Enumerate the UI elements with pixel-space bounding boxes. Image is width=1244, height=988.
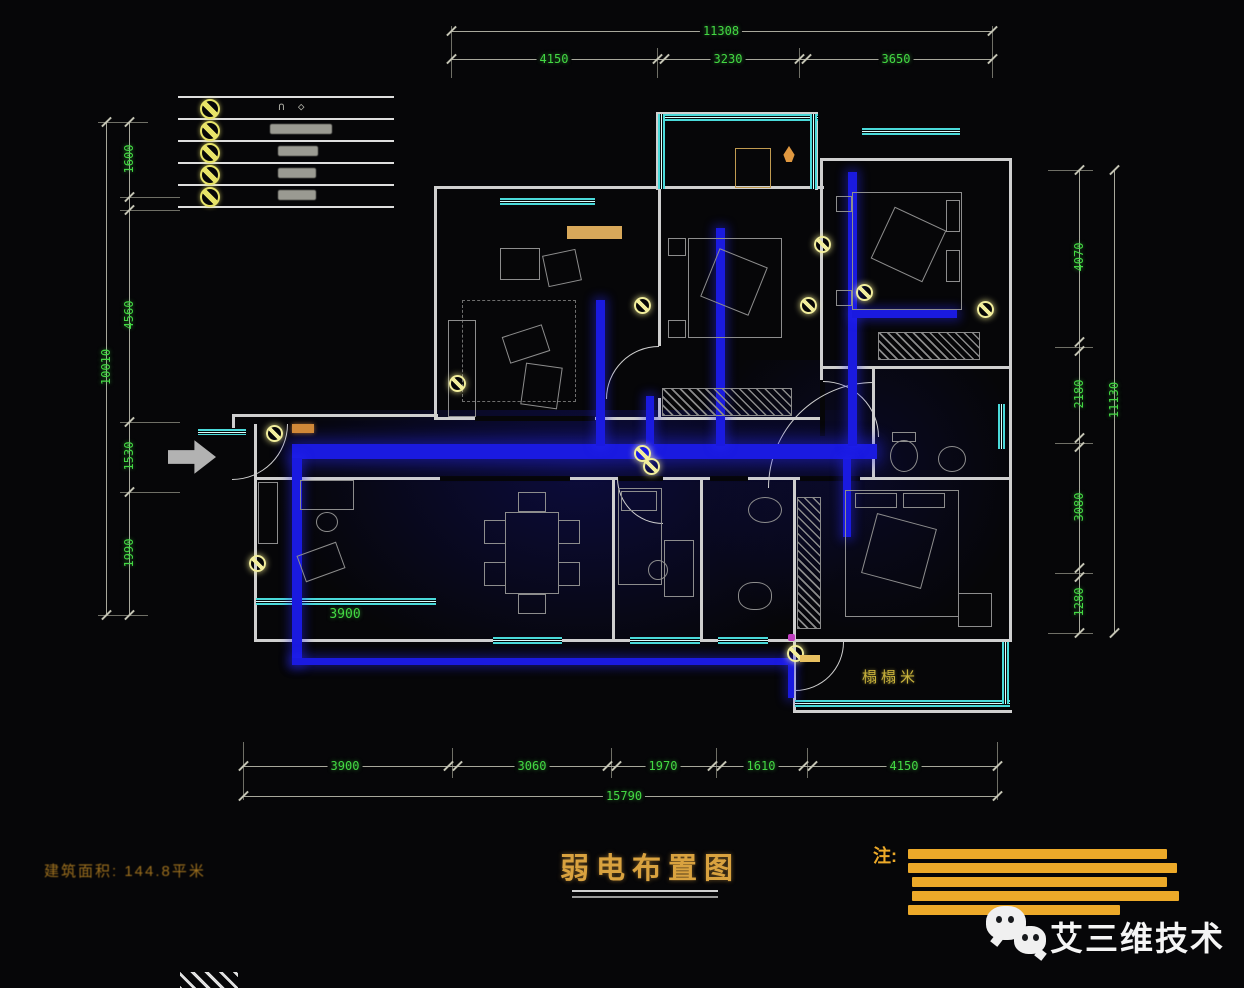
doorbell-panel-icon [292, 424, 314, 433]
bedroom-door-arc [606, 346, 659, 399]
note-line-redacted [908, 849, 1167, 859]
weak-current-outlet-icon [634, 297, 651, 314]
watermark-text: 艾三维技术 [1050, 912, 1225, 960]
dim-left-seg1: 1600 [122, 129, 136, 189]
dim-right-seg2: 2180 [1072, 364, 1086, 424]
weak-current-outlet-icon [977, 301, 994, 318]
dim-bottom-overall: 15790 [603, 789, 645, 803]
armchair [958, 593, 992, 627]
pillow [946, 250, 960, 282]
pillow [855, 493, 897, 508]
tatami-room-label: 榻榻米 [862, 666, 919, 687]
dim-bottom-seg4: 1610 [744, 759, 779, 773]
dim-left-seg2: 4560 [122, 285, 136, 345]
cable-run [292, 658, 792, 665]
sofa [448, 320, 476, 417]
desk [300, 480, 354, 510]
weak-current-outlet-icon [643, 458, 660, 475]
dim-right-seg4: 1280 [1072, 572, 1086, 632]
dim-bottom-seg2: 3060 [515, 759, 550, 773]
wardrobe [662, 388, 792, 416]
window [998, 404, 1005, 449]
dim-left-seg4: 1990 [122, 523, 136, 583]
main-cable-run [292, 444, 877, 459]
weak-current-outlet-icon [814, 236, 831, 253]
legend-row1-marks: ∩ ◇ [278, 100, 305, 113]
weak-current-symbol-1-icon [200, 99, 220, 119]
desk [664, 540, 694, 597]
note-line-redacted [908, 863, 1177, 873]
toilet [890, 440, 918, 472]
wechat-icon [986, 906, 1050, 964]
weak-current-symbol-3-icon [200, 143, 220, 163]
dim-top-seg1: 4150 [537, 52, 572, 66]
nightstand [836, 290, 852, 306]
pillow [621, 491, 657, 511]
chair [648, 560, 668, 580]
cad-drawing-canvas: ∩ ◇ 11308 4150 3230 3650 10010 [0, 0, 1244, 988]
armchair [500, 248, 540, 280]
dining-table [505, 512, 559, 594]
window [493, 637, 562, 644]
entry-sill [198, 429, 246, 435]
weak-current-symbol-2-icon [200, 121, 220, 141]
dim-bottom-seg3: 1970 [646, 759, 681, 773]
legend-row2-label [270, 124, 332, 134]
dining-chair [484, 562, 506, 586]
window [500, 198, 595, 205]
note-line-redacted [912, 877, 1167, 887]
tv-cabinet [567, 226, 622, 239]
title-underline [572, 890, 718, 892]
building-area-text: 建筑面积: 144.8平米 [44, 860, 206, 881]
dining-chair [558, 520, 580, 544]
weak-current-symbol-4-icon [200, 165, 220, 185]
legend-row4-label [278, 168, 316, 178]
weak-current-symbol-5-icon [200, 187, 220, 207]
window [810, 114, 817, 189]
pillow [946, 200, 960, 232]
legend-table: ∩ ◇ [178, 96, 394, 208]
weak-current-outlet-icon [266, 425, 283, 442]
legend-row3-label [278, 146, 318, 156]
weak-current-outlet-icon [249, 555, 266, 572]
dim-top-overall: 11308 [700, 24, 742, 38]
window [718, 637, 768, 644]
dim-right-seg3: 3080 [1072, 477, 1086, 537]
window [658, 114, 818, 121]
chaise [520, 363, 562, 410]
title-underline [572, 896, 718, 898]
marker-dot [788, 634, 795, 641]
legend-divider [178, 96, 394, 98]
window [862, 128, 960, 135]
window [630, 637, 700, 644]
entry-arrow-icon [168, 438, 216, 476]
window [658, 114, 665, 189]
balcony-socket-icon [800, 655, 820, 662]
interior-dim-dining: 3900 [326, 608, 363, 622]
dim-right-seg1: 4070 [1072, 227, 1086, 287]
weak-current-outlet-icon [800, 297, 817, 314]
legend-row5-label [278, 190, 316, 200]
clipped-hatch-fragment [180, 972, 238, 988]
nightstand [668, 320, 686, 338]
dim-bottom-seg1: 3900 [328, 759, 363, 773]
wardrobe [878, 332, 980, 360]
toilet-tank [892, 432, 916, 442]
side-table [296, 542, 345, 583]
pillow [903, 493, 945, 508]
cable-riser [646, 396, 654, 446]
balcony-window [1002, 642, 1009, 704]
dim-bottom-seg5: 4150 [887, 759, 922, 773]
chair [316, 512, 338, 532]
nightstand [836, 196, 852, 212]
cabinet [258, 482, 278, 544]
dining-chair [518, 594, 546, 614]
cable-riser [788, 660, 794, 698]
nightstand [668, 238, 686, 256]
dining-chair [558, 562, 580, 586]
water-heater [735, 148, 771, 188]
cable-riser [596, 300, 605, 446]
dining-chair [484, 520, 506, 544]
weak-current-outlet-icon [856, 284, 873, 301]
dim-top-seg3: 3650 [879, 52, 914, 66]
gas-symbol-icon [782, 146, 796, 162]
toilet [738, 582, 772, 610]
balcony-window [795, 700, 1010, 707]
sink [748, 497, 782, 523]
note-line-redacted [912, 891, 1179, 901]
drawing-title: 弱电布置图 [560, 845, 740, 887]
dim-right-overall: 11130 [1107, 370, 1121, 430]
dim-left-seg3: 1530 [122, 426, 136, 486]
wardrobe [797, 497, 821, 629]
weak-current-outlet-icon [449, 375, 466, 392]
sink [938, 446, 966, 472]
armchair [542, 249, 582, 287]
dim-top-seg2: 3230 [711, 52, 746, 66]
window [256, 598, 436, 605]
dining-chair [518, 492, 546, 512]
dim-left-overall: 10010 [99, 337, 113, 397]
cable-run [852, 310, 957, 318]
note-label: 注: [873, 842, 897, 868]
